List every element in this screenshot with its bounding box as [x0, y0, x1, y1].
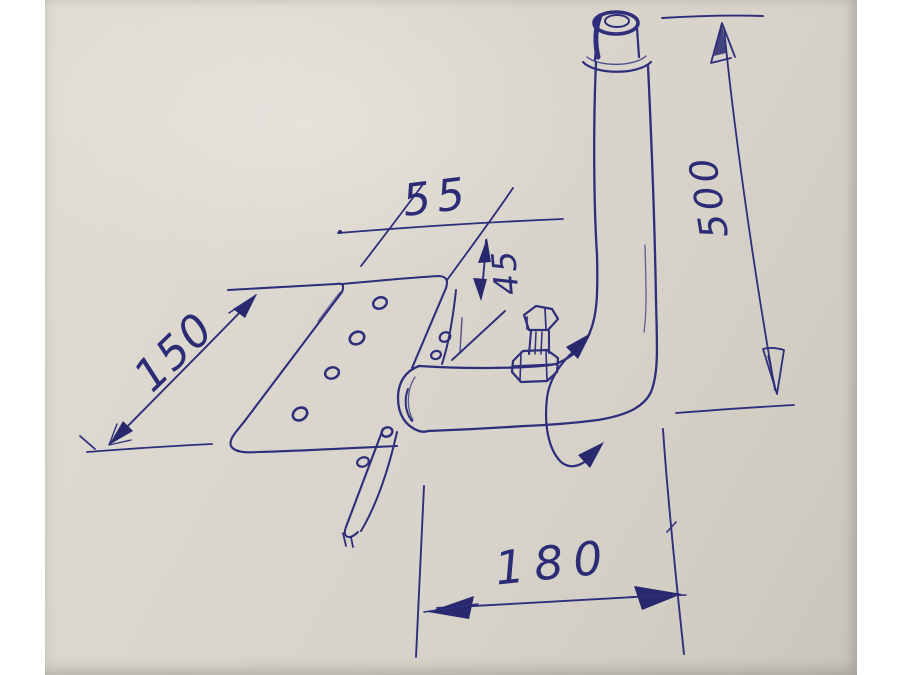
valve-base-facet [546, 351, 547, 380]
valve-head-facet [545, 308, 546, 329]
rotation-arrow [546, 333, 604, 468]
pen-dot [338, 230, 342, 234]
pen-skip-mark [318, 292, 340, 321]
valve-bolt [512, 306, 558, 382]
pipe-assembly [398, 62, 657, 432]
plate-tip-foot [351, 537, 353, 547]
dim-500-cap-line [662, 16, 763, 18]
plate-left-outline [228, 284, 397, 453]
dim-180-arrowhead-right [634, 586, 682, 610]
valve-base-facet [520, 352, 521, 381]
pipe-double-stroke [644, 245, 646, 332]
dim-55-label: 55 [400, 168, 474, 227]
valve-head-hex [524, 306, 558, 330]
photo-of-sketch: 150 55 45 500 [0, 0, 900, 675]
rotation-arrow-curve [546, 342, 596, 466]
plate-inner-diagonal-lower [346, 429, 383, 527]
pipe-end-cap [398, 366, 428, 432]
dim-45-label: 45 [484, 248, 527, 297]
dim-55: 55 [338, 168, 563, 280]
plate-hole [324, 366, 340, 380]
dim-180-label: 180 [492, 530, 615, 596]
plate-hole [430, 350, 442, 361]
plate-hole [291, 405, 310, 423]
plate-outer-diagonal-upper [442, 290, 456, 364]
dim-150-baseline [87, 444, 212, 452]
dim-150-tick [80, 436, 95, 449]
vertical-pipe-left-edge [556, 62, 597, 364]
mounting-plate [228, 276, 456, 547]
dim-500: 500 [662, 16, 794, 413]
dim-150: 150 [80, 294, 257, 452]
collar-shoulder [583, 62, 651, 72]
vertical-pipe-right-edge [598, 66, 657, 420]
plate-hole [348, 329, 367, 346]
dim-150-label: 150 [124, 303, 224, 402]
dim-500-arrowhead-bottom [763, 348, 784, 394]
dim-45-stray-stroke [460, 318, 462, 352]
pen-sketch: 150 55 45 500 [0, 0, 900, 675]
plate-hole [380, 426, 394, 439]
collar-bore [605, 15, 629, 27]
dim-45-arrowhead-bottom [473, 278, 487, 301]
pipe-collar [583, 12, 651, 72]
dim-500-baseline [676, 405, 794, 413]
pipe-end-cap-sketch-arc [408, 377, 415, 420]
dim-500-label: 500 [680, 151, 737, 241]
collar-side [637, 28, 639, 57]
plate-holes [291, 295, 452, 468]
dim-180: 180 [416, 429, 686, 657]
dim-45: 45 [452, 238, 526, 360]
plate-tip [345, 527, 358, 537]
horizontal-pipe-bottom-edge [428, 420, 598, 431]
dim-180-ext-right [663, 429, 684, 654]
plate-hole [371, 295, 388, 310]
dim-180-ext-left [416, 486, 424, 657]
